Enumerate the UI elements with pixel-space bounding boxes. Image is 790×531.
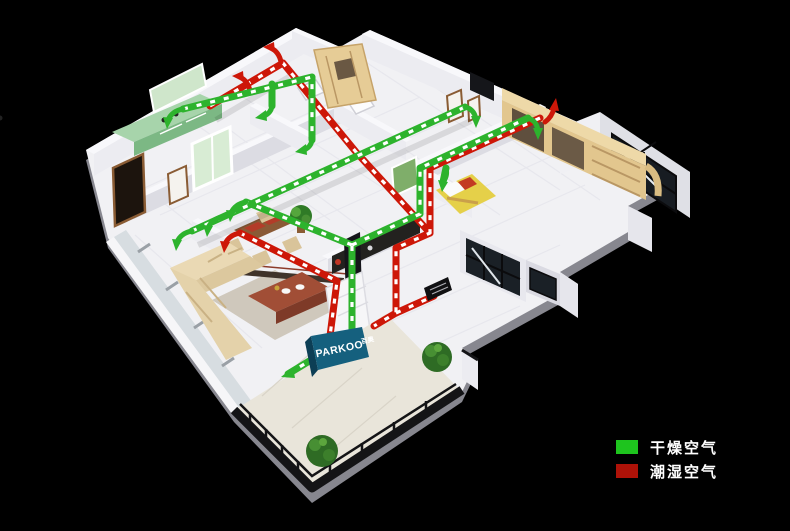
dry-air-swatch [616,440,638,454]
apartment-illustration: PARKOO 百奥 干燥空气 潮湿空气 [0,0,790,531]
balcony-plant-right [422,342,452,372]
balcony-plant-bottom [306,435,338,467]
legend: 干燥空气 潮湿空气 [616,439,718,481]
right-step-wall-2 [628,206,652,252]
humid-air-label: 潮湿空气 [650,463,718,481]
legend-item-dry-air: 干燥空气 [616,439,718,457]
hall-picture [168,166,188,204]
right-step-wall-4 [560,272,578,318]
scene-canvas: PARKOO 百奥 干燥空气 潮湿空气 [0,0,790,531]
decor-vase [335,259,341,265]
humid-air-swatch [616,464,638,478]
legend-item-humid-air: 潮湿空气 [616,463,718,481]
entrance-door [113,154,145,226]
dry-air-label: 干燥空气 [650,439,718,457]
